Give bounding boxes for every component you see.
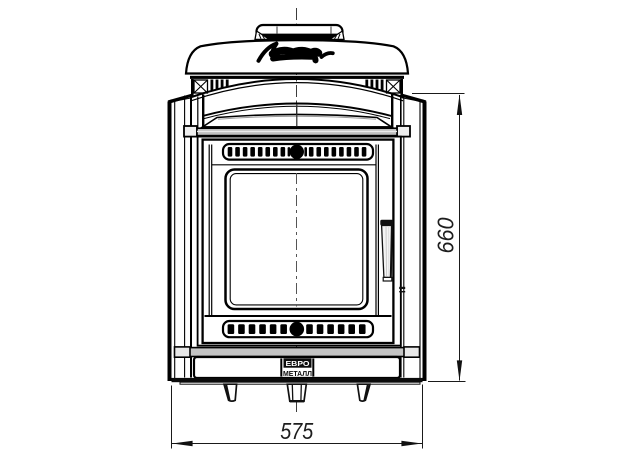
svg-text:660: 660 (432, 217, 458, 253)
svg-text:ЕВРО: ЕВРО (286, 361, 311, 368)
svg-text:МЕТАЛЛ: МЕТАЛЛ (283, 369, 312, 378)
svg-text:575: 575 (280, 418, 313, 444)
